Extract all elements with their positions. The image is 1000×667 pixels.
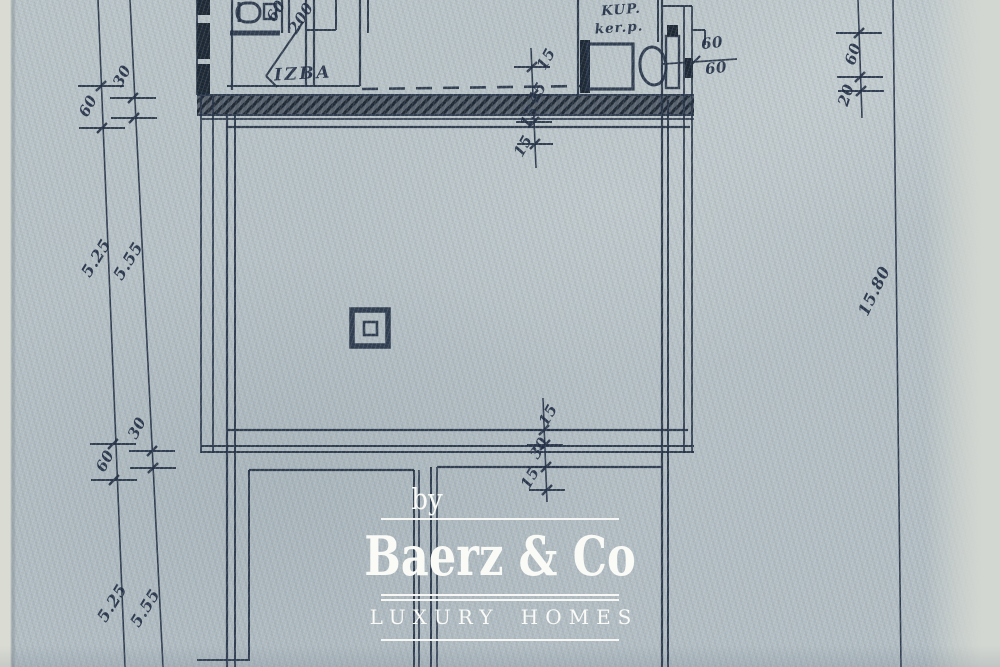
dim-bath-a: 60 [700, 33, 724, 54]
dim-right-total: 15.80 [854, 263, 894, 319]
dim-left-low-outer: 60 [92, 447, 118, 475]
room-label-izba: IZBA [274, 62, 333, 85]
dim-left-top-outer: 60 [75, 92, 101, 120]
room-label-kerp: ker.p. [594, 18, 644, 37]
dim-left-bot-a: 5.25 [93, 581, 131, 626]
dim-left-low-inner: 30 [124, 414, 150, 442]
dim-left-top-inner: 30 [109, 62, 135, 90]
dim-right-top-b: 20 [834, 82, 858, 108]
dim-left-bot-b: 5.55 [126, 586, 164, 631]
room-label-kup: KUP. [601, 1, 642, 20]
scanned-floorplan-photo: 60 30 5.25 5.55 30 60 5.25 5.55 60 20 15… [0, 0, 1000, 667]
dim-center-top-3: 15 [516, 103, 543, 131]
dim-door-width: 60 [263, 0, 290, 25]
dim-center-bottom-1: 15 [535, 401, 562, 429]
plan-labels: 60 30 5.25 5.55 30 60 5.25 5.55 60 20 15… [0, 0, 1000, 667]
dim-bath-b: 60 [704, 58, 728, 79]
dim-right-top-a: 60 [841, 41, 865, 67]
dim-center-top-1: 15 [533, 45, 560, 73]
dim-center-top-4: 15 [510, 132, 537, 160]
dim-center-bottom-3: 15 [517, 464, 544, 492]
dim-center-bottom-2: 30 [526, 434, 553, 462]
